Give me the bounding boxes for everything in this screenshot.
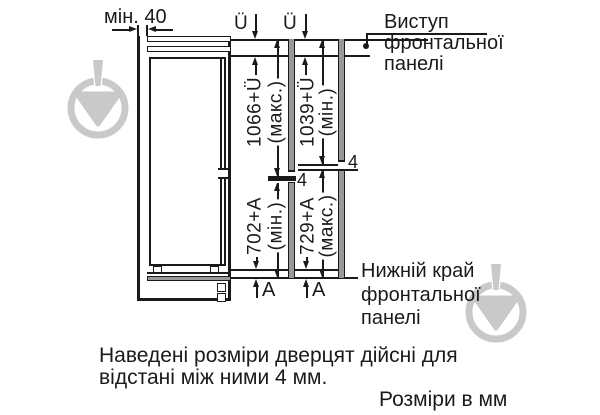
dimension-line	[306, 286, 308, 298]
hinge-detail	[217, 283, 226, 292]
watermark-logo	[63, 58, 133, 148]
door-gap-label-left: 4	[297, 170, 307, 191]
callout-text: Виступ	[384, 12, 504, 33]
arrowhead	[274, 40, 280, 48]
mounting-bracket	[153, 266, 162, 273]
arrowhead	[253, 261, 259, 269]
dim-value: 729+A	[299, 195, 318, 257]
cabinet-right-wall	[228, 39, 231, 301]
callout-text: Нижній край	[361, 260, 481, 284]
arrowhead	[274, 168, 280, 176]
lower-edge-callout: Нижній край фронтальної панелі	[361, 260, 481, 331]
arrowhead	[319, 40, 325, 48]
dim-value: 1039+Ü	[299, 75, 318, 149]
offset-label: A	[262, 279, 275, 302]
cabinet-top-panel	[147, 36, 231, 42]
mounting-bracket	[210, 266, 219, 273]
installation-diagram: мін. 40 Ü Ü Виступ фронтальної панелі	[0, 0, 600, 415]
callout-text: панелі	[361, 307, 481, 331]
gap-tick-line	[298, 164, 338, 166]
appliance-top-panel	[147, 46, 231, 52]
dim-qualifier: (мін.)	[318, 86, 337, 139]
caption-line-2: відстані між ними 4 мм.	[99, 366, 327, 390]
fridge-door-inner-edge	[220, 59, 222, 264]
door-split-cap-lower	[218, 177, 228, 179]
overhang-label: Ü	[234, 13, 248, 35]
dim-value: 1066+Ü	[246, 75, 265, 149]
fridge-door	[149, 57, 226, 266]
arrowhead	[319, 269, 325, 277]
door-gap-label-right: 4	[348, 152, 358, 173]
callout-text: фронтальної	[361, 284, 481, 308]
dimension-line	[112, 29, 130, 31]
hinge-detail	[217, 293, 226, 302]
offset-label: A	[312, 279, 325, 302]
min-gap-label: мін. 40	[104, 6, 167, 29]
front-panel-lower-right	[338, 170, 345, 278]
door-junction-bar	[268, 176, 296, 181]
dimension-line	[156, 29, 173, 31]
arrowhead	[252, 57, 258, 65]
plinth-bar	[147, 276, 231, 281]
callout-text: панелі	[384, 54, 504, 75]
front-panel-lower-left	[288, 182, 295, 278]
cabinet-left-wall	[137, 36, 140, 301]
dim-value: 702+A	[246, 195, 265, 257]
arrowhead	[302, 57, 308, 65]
arrowhead	[252, 31, 258, 39]
dim-qualifier: (мін.)	[267, 200, 286, 253]
leader-dot	[363, 43, 369, 49]
dimension-line	[256, 286, 258, 298]
caption-line-1: Наведені розміри дверцят дійсні для	[99, 344, 458, 368]
dimension-line	[305, 14, 307, 32]
arrowhead	[319, 170, 325, 178]
overhang-label: Ü	[283, 13, 297, 35]
door-split-cap-upper	[218, 168, 228, 170]
front-panel-callout: Виступ фронтальної панелі	[384, 12, 504, 75]
front-panel-upper-left	[288, 39, 295, 172]
arrowhead	[303, 261, 309, 269]
arrowhead	[274, 269, 280, 277]
front-panel-upper-right	[338, 39, 345, 162]
arrowhead	[319, 156, 325, 164]
dim-qualifier: (макс.)	[267, 78, 286, 145]
dimension-line	[255, 14, 257, 32]
dim-qualifier: (макс.)	[318, 192, 337, 259]
callout-text: фронтальної	[384, 33, 504, 54]
arrowhead	[274, 183, 280, 191]
arrowhead	[302, 31, 308, 39]
units-note: Розміри в мм	[379, 388, 507, 412]
